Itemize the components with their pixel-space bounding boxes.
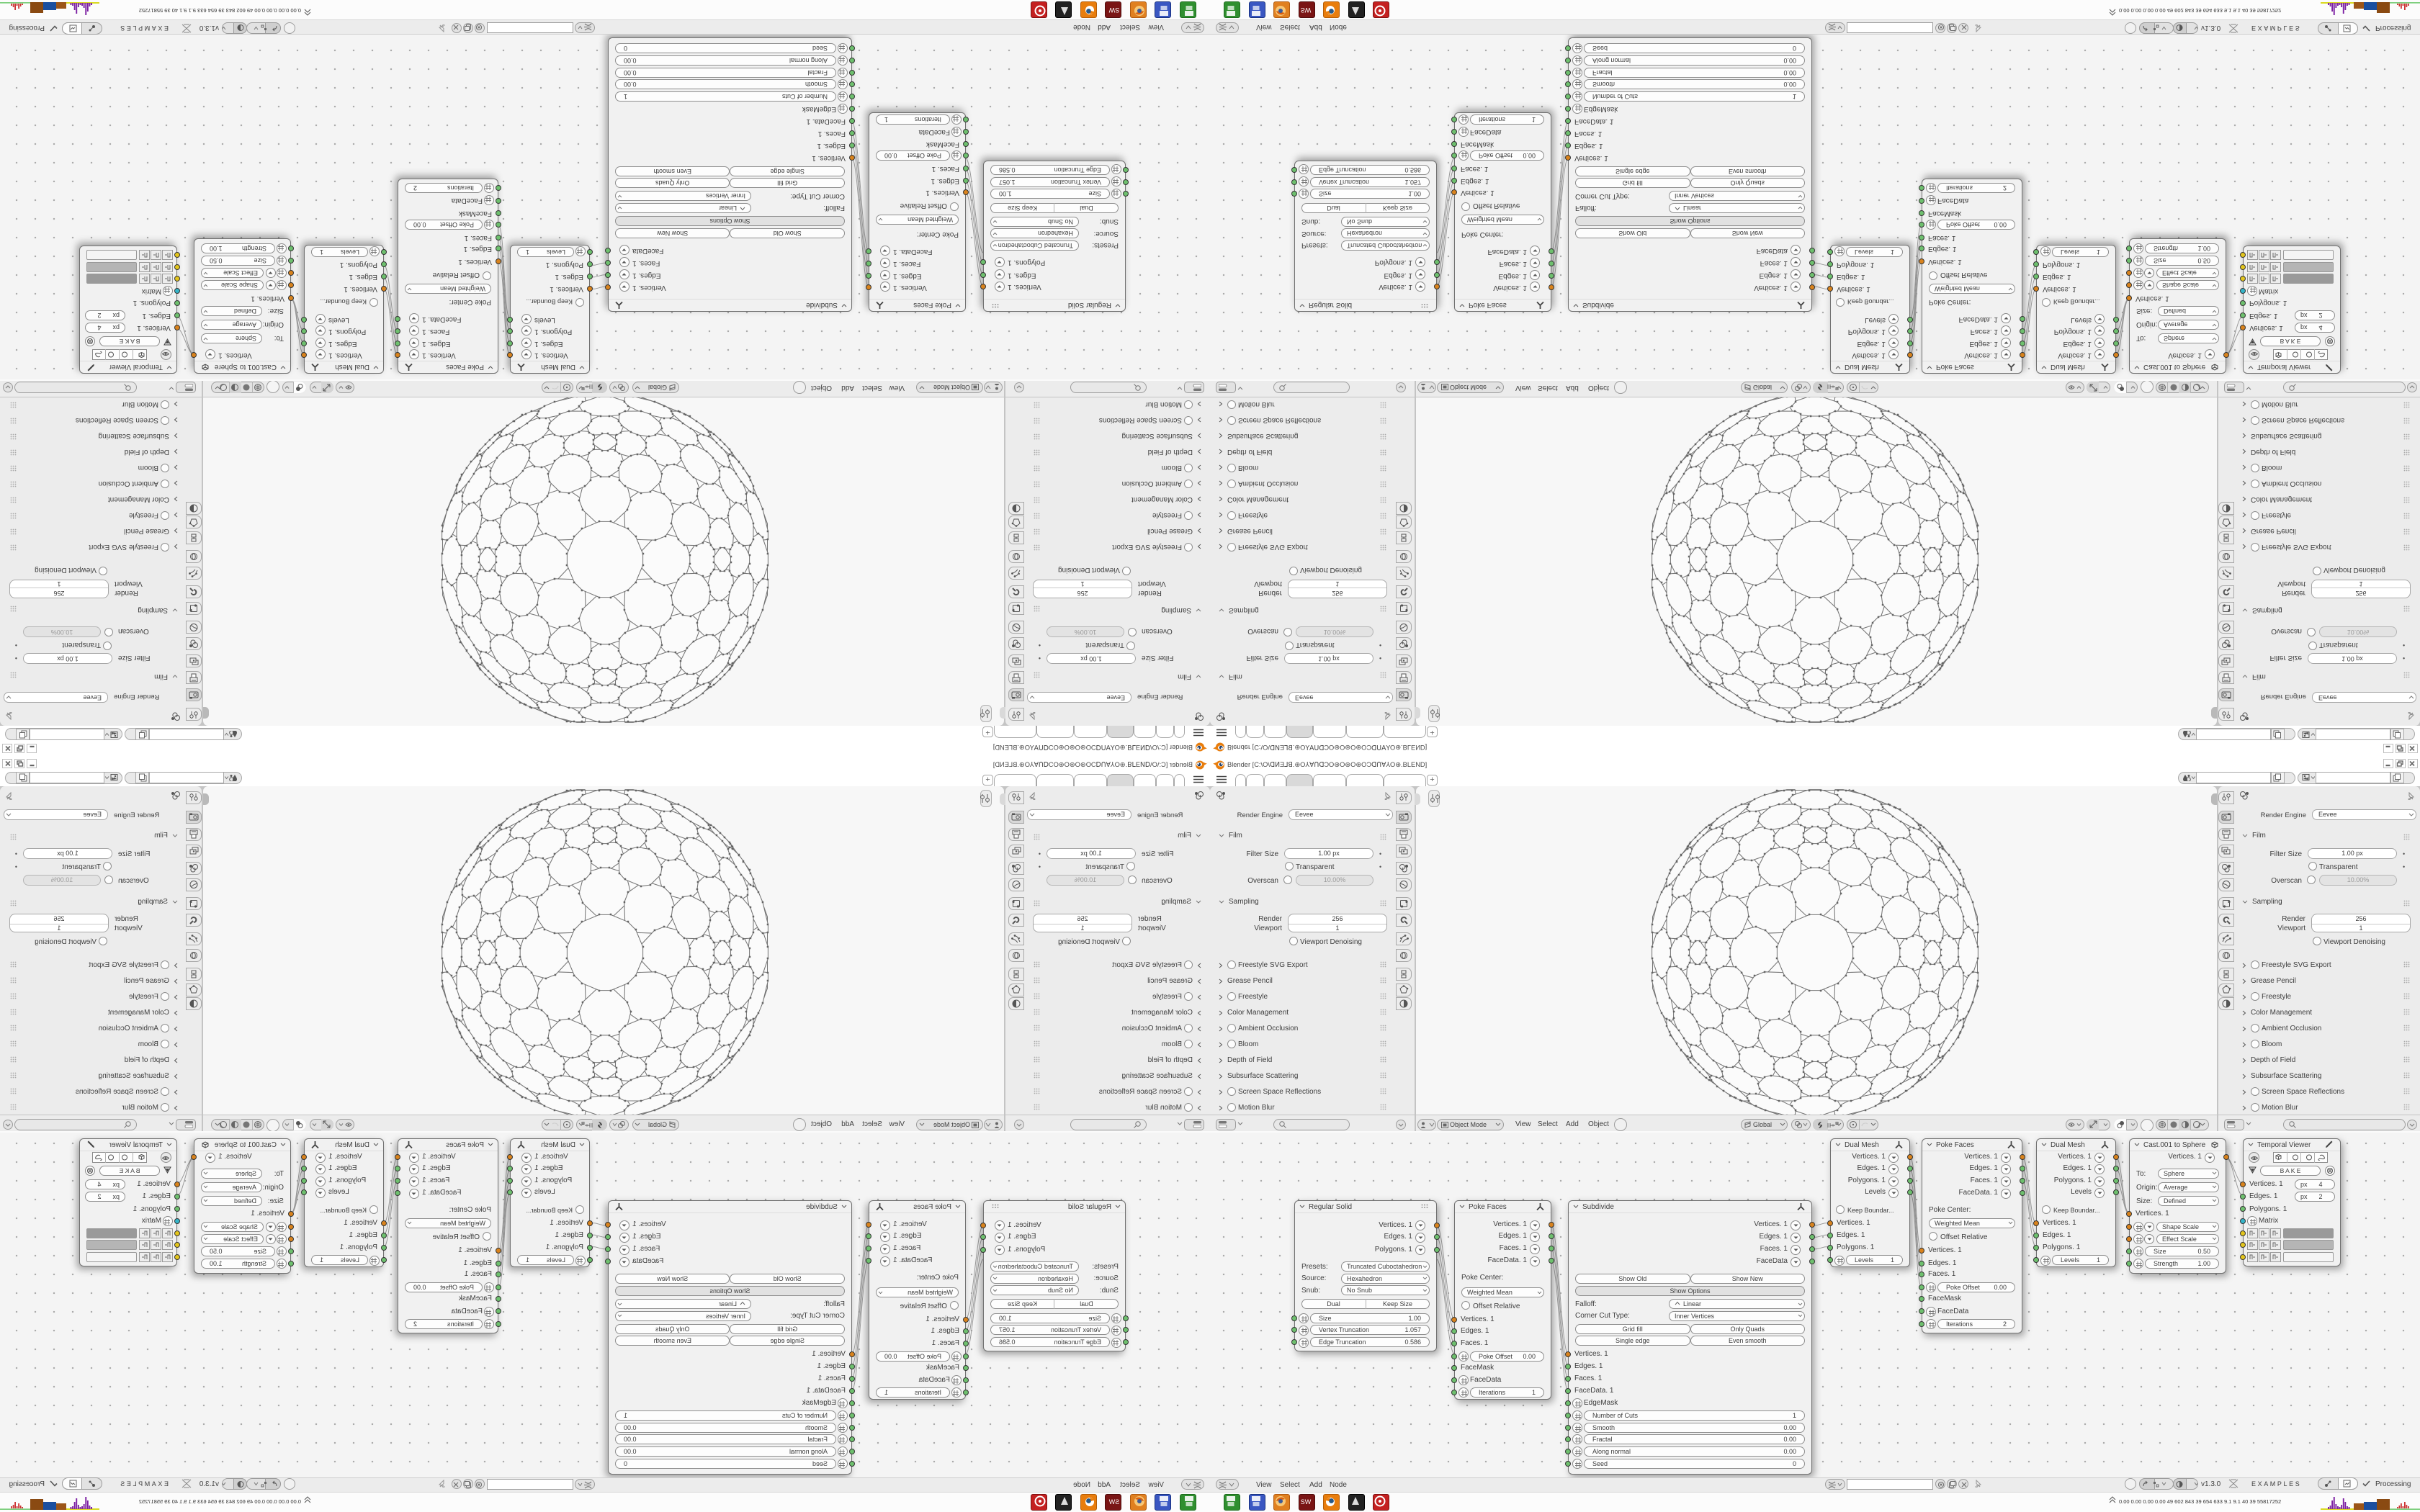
svg-text:SW: SW <box>1300 1498 1311 1506</box>
svg-text:SW: SW <box>1109 6 1120 14</box>
svg-text:SW: SW <box>1300 6 1311 14</box>
svg-text:SW: SW <box>1109 1498 1120 1506</box>
